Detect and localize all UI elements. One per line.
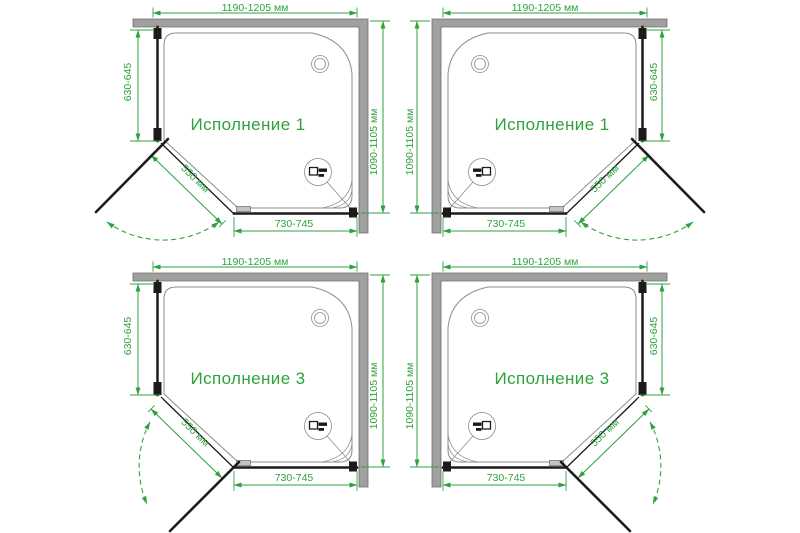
quadrant-bottom-right: 1190-1205 мм 630-645 1090-1105 мм 730-74… <box>404 256 670 531</box>
dim-depth-label: 1090-1105 мм <box>404 363 416 430</box>
quadrant-bottom-left: 1190-1205 мм 630-645 1090-1105 мм 730-74… <box>122 256 390 531</box>
dim-width-label: 1190-1205 мм <box>222 2 289 14</box>
variant-label: Исполнение 1 <box>494 115 609 134</box>
dim-depth-label: 1090-1105 мм <box>368 363 380 430</box>
dim-width-label: 1190-1205 мм <box>512 2 579 14</box>
quadrant-top-left: 1190-1205 мм 630-645 1090-1105 мм 730-74… <box>96 2 390 240</box>
dim-side-label: 630-645 <box>122 63 134 102</box>
dim-side-label: 630-645 <box>648 317 660 356</box>
dim-side-label: 630-645 <box>648 63 660 102</box>
shower-enclosure-drawing: 1190-1205 мм 630-645 1090-1105 мм 730-74… <box>0 0 800 533</box>
dim-front-label: 730-745 <box>275 472 314 484</box>
dim-width-label: 1190-1205 мм <box>512 256 579 268</box>
open-door-variant-3 <box>561 422 661 531</box>
open-door-variant-3 <box>139 422 239 531</box>
dim-depth-label: 1090-1105 мм <box>404 109 416 176</box>
dim-front-label: 730-745 <box>275 218 314 230</box>
dim-depth-label: 1090-1105 мм <box>368 109 380 176</box>
dim-side-label: 630-645 <box>122 317 134 356</box>
dim-width-label: 1190-1205 мм <box>222 256 289 268</box>
drawing-canvas: 1190-1205 мм 630-645 1090-1105 мм 730-74… <box>0 0 800 533</box>
dim-front-label: 730-745 <box>487 218 526 230</box>
variant-label: Исполнение 1 <box>190 115 305 134</box>
quadrant-top-right: 1190-1205 мм 630-645 1090-1105 мм 730-74… <box>404 2 704 240</box>
variant-label: Исполнение 3 <box>494 369 609 388</box>
variant-label: Исполнение 3 <box>190 369 305 388</box>
dim-front-label: 730-745 <box>487 472 526 484</box>
